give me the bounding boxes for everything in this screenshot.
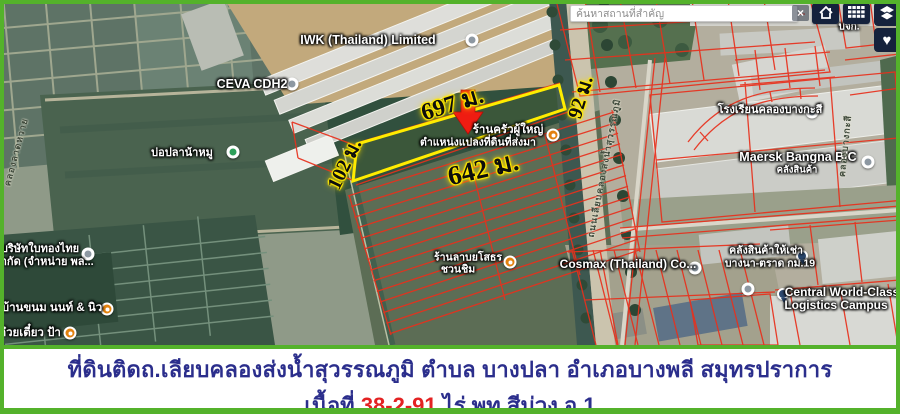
area-value: 38-2-91 <box>361 393 437 414</box>
grid-button[interactable] <box>843 3 870 24</box>
map-label: CEVA CDH2 <box>217 77 288 91</box>
map-label: บ่อปลาน้าหมู <box>151 143 213 161</box>
caption-line2: เนื้อที่ 38-2-91 ไร่ พท.สีม่วง อ.1 <box>0 388 900 414</box>
labels-layer: IWK (Thailand) LimitedCEVA CDH2บ่อปลาน้า… <box>0 0 900 345</box>
poi-marker[interactable] <box>101 303 114 316</box>
map-label: 92 ม. <box>558 72 601 123</box>
map-label: ก๋วยเตี๋ยว ป้า <box>0 324 61 342</box>
poi-marker[interactable] <box>862 156 875 169</box>
close-icon: × <box>797 6 804 20</box>
area-suffix: ไร่ พท.สีม่วง อ.1 <box>443 393 596 414</box>
screenshot-root: IWK (Thailand) LimitedCEVA CDH2บ่อปลาน้า… <box>0 0 900 414</box>
map-label: Cosmax (Thailand) Co... <box>560 257 697 271</box>
heart-icon: ♥ <box>883 33 892 48</box>
home-button[interactable] <box>812 3 839 24</box>
map-label: จำกัด (จำหน่าย พล... <box>0 252 94 270</box>
poi-marker[interactable] <box>547 129 560 142</box>
map-label: คลองลาดหวาย <box>0 116 32 187</box>
caption-line1: ที่ดินติดถ.เลียบคลองส่งน้ำสุวรรณภูมิ ตำบ… <box>0 352 900 387</box>
map-label: IWK (Thailand) Limited <box>300 33 435 47</box>
home-icon <box>818 5 834 23</box>
map-caption-divider <box>0 345 900 349</box>
poi-marker[interactable] <box>742 283 755 296</box>
map-label: ชวนชิม <box>441 261 475 278</box>
clear-search-button[interactable]: × <box>792 5 809 21</box>
area-prefix: เนื้อที่ <box>304 393 354 414</box>
map-label: โรงเรียนคลองบางกะสี <box>718 100 823 118</box>
map-label: Central World-Class <box>785 285 899 299</box>
map-label: บ้านขนม นนท์ & นิว <box>2 299 102 317</box>
map-label: Logistics Campus <box>784 298 887 312</box>
satellite-map[interactable]: IWK (Thailand) LimitedCEVA CDH2บ่อปลาน้า… <box>0 0 900 345</box>
layers-button[interactable] <box>874 2 900 26</box>
poi-marker[interactable] <box>64 327 77 340</box>
map-label: บางนา-ตราด กม.19 <box>725 255 815 272</box>
listing-caption: ที่ดินติดถ.เลียบคลองส่งน้ำสุวรรณภูมิ ตำบ… <box>0 349 900 408</box>
map-label: คลองบางกะสี <box>835 114 855 177</box>
search-bar <box>570 5 798 22</box>
search-input[interactable] <box>570 5 798 22</box>
poi-marker[interactable] <box>227 146 240 159</box>
poi-marker[interactable] <box>466 34 479 47</box>
grid-icon <box>848 6 865 21</box>
poi-marker[interactable] <box>504 256 517 269</box>
layers-icon <box>879 5 895 24</box>
map-label: 102 ม. <box>318 133 370 195</box>
map-label: คลังสินค้า <box>777 163 818 178</box>
favorites-button[interactable]: ♥ <box>874 28 900 52</box>
